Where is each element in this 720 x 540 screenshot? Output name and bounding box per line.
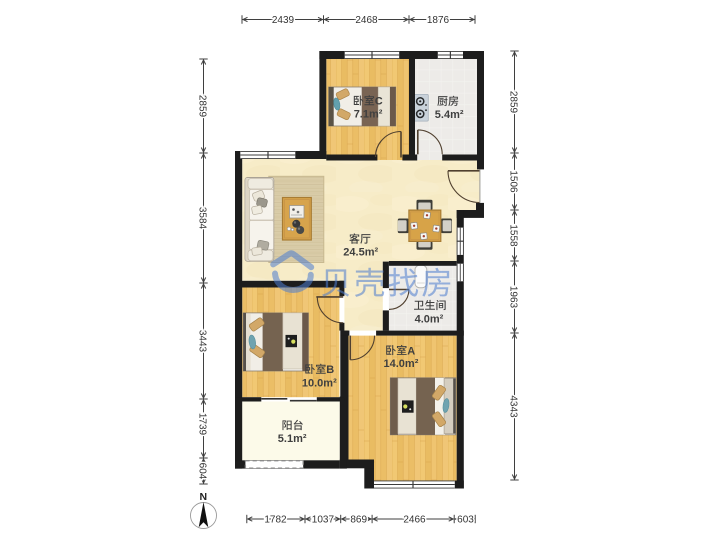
svg-text:1506: 1506 <box>508 170 519 193</box>
svg-text:3443: 3443 <box>197 330 208 353</box>
svg-text:604: 604 <box>197 463 208 480</box>
svg-text:869: 869 <box>350 515 367 526</box>
svg-text:10.0m²: 10.0m² <box>302 377 337 389</box>
svg-text:1739: 1739 <box>197 413 208 436</box>
svg-text:5.4m²: 5.4m² <box>435 109 464 121</box>
svg-text:4343: 4343 <box>508 395 519 418</box>
svg-text:1876: 1876 <box>427 15 450 26</box>
svg-text:C: C <box>375 96 383 108</box>
svg-text:3584: 3584 <box>197 207 208 230</box>
svg-text:2859: 2859 <box>508 91 519 114</box>
svg-text:14.0m²: 14.0m² <box>384 358 419 370</box>
svg-text:B: B <box>326 364 334 376</box>
svg-text:2439: 2439 <box>272 15 295 26</box>
svg-text:N: N <box>200 491 208 503</box>
svg-text:2466: 2466 <box>403 515 426 526</box>
svg-text:1037: 1037 <box>312 515 335 526</box>
svg-text:4.0m²: 4.0m² <box>415 314 444 326</box>
svg-text:2859: 2859 <box>197 95 208 118</box>
svg-text:1963: 1963 <box>508 286 519 309</box>
svg-text:1558: 1558 <box>508 224 519 247</box>
svg-text:5.1m²: 5.1m² <box>278 433 307 445</box>
svg-text:2468: 2468 <box>355 15 378 26</box>
svg-text:603: 603 <box>457 515 474 526</box>
svg-text:1782: 1782 <box>264 515 287 526</box>
svg-text:7.1m²: 7.1m² <box>354 108 383 120</box>
svg-text:A: A <box>407 345 415 357</box>
svg-text:24.5m²: 24.5m² <box>343 247 378 259</box>
